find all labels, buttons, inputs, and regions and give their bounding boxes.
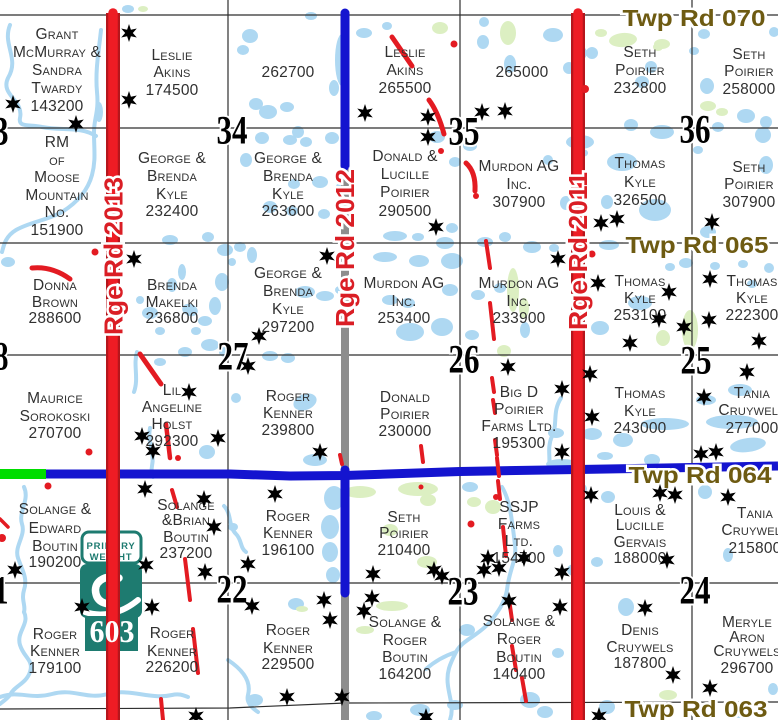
svg-text:Kenner: Kenner: [147, 643, 197, 660]
svg-text:of: of: [49, 152, 65, 169]
svg-text:35: 35: [449, 109, 480, 154]
svg-text:Big D: Big D: [500, 384, 538, 401]
svg-text:Seth: Seth: [387, 509, 420, 526]
svg-text:Thomas: Thomas: [614, 273, 665, 290]
svg-text:Donald &: Donald &: [372, 148, 438, 165]
svg-text:215800: 215800: [729, 540, 778, 557]
svg-text:Seth: Seth: [732, 46, 765, 63]
svg-text:Grant: Grant: [35, 26, 78, 43]
svg-text:McMurray &: McMurray &: [13, 44, 102, 61]
svg-text:190200: 190200: [29, 554, 82, 571]
svg-text:Twp Rd 070: Twp Rd 070: [623, 5, 766, 31]
svg-text:236800: 236800: [146, 310, 199, 327]
svg-text:Kenner: Kenner: [263, 640, 313, 657]
svg-text:Solange &: Solange &: [19, 501, 92, 518]
svg-text:Roger: Roger: [266, 622, 311, 639]
svg-text:Akins: Akins: [153, 64, 190, 81]
svg-text:Moose: Moose: [34, 169, 80, 186]
svg-text:Twp Rd 063: Twp Rd 063: [625, 696, 768, 720]
svg-text:164200: 164200: [379, 666, 432, 683]
svg-text:270700: 270700: [29, 425, 82, 442]
svg-text:25: 25: [681, 338, 712, 383]
svg-text:Maurice: Maurice: [27, 390, 83, 407]
svg-text:Brenda: Brenda: [147, 168, 198, 185]
svg-text:SSJP: SSJP: [499, 499, 539, 516]
svg-text:Rge Rd 2011: Rge Rd 2011: [563, 172, 593, 330]
svg-text:Mountain: Mountain: [25, 187, 88, 204]
svg-text:143200: 143200: [31, 98, 84, 115]
svg-text:Angeline: Angeline: [142, 399, 202, 416]
svg-text:Kyle: Kyle: [272, 186, 304, 203]
svg-text:Leslie: Leslie: [384, 44, 425, 61]
svg-text:263600: 263600: [262, 203, 315, 220]
svg-text:Boutin: Boutin: [382, 649, 428, 666]
svg-text:Kyle: Kyle: [624, 290, 656, 307]
svg-text:Kenner: Kenner: [263, 405, 313, 422]
svg-text:140400: 140400: [493, 666, 546, 683]
svg-text:George &: George &: [254, 265, 322, 282]
svg-text:26: 26: [449, 337, 480, 382]
svg-text:253400: 253400: [378, 310, 431, 327]
svg-text:24: 24: [680, 568, 711, 613]
svg-text:Roger: Roger: [33, 626, 78, 643]
svg-text:Holst: Holst: [152, 416, 193, 433]
svg-text:222300: 222300: [726, 307, 778, 324]
svg-text:Kenner: Kenner: [263, 525, 313, 542]
svg-text:Boutin: Boutin: [32, 538, 78, 555]
svg-text:Poirier: Poirier: [615, 62, 665, 79]
svg-text:Brenda: Brenda: [263, 283, 314, 300]
svg-text:297200: 297200: [262, 319, 315, 336]
svg-text:195300: 195300: [493, 435, 546, 452]
svg-text:Thomas: Thomas: [614, 385, 665, 402]
svg-text:Farms: Farms: [498, 516, 540, 533]
svg-text:179100: 179100: [29, 660, 82, 677]
svg-text:Roger: Roger: [383, 632, 428, 649]
svg-text:326500: 326500: [614, 192, 667, 209]
svg-text:22: 22: [217, 567, 248, 612]
svg-text:Boutin: Boutin: [163, 529, 209, 546]
svg-text:Cruywels: Cruywels: [713, 643, 778, 660]
svg-text:Rge Rd 2013: Rge Rd 2013: [99, 177, 129, 335]
svg-text:Kyle: Kyle: [156, 186, 188, 203]
svg-text:237200: 237200: [160, 545, 213, 562]
svg-text:Poirier: Poirier: [379, 525, 429, 542]
svg-text:Inc.: Inc.: [506, 293, 531, 310]
svg-text:George &: George &: [254, 150, 322, 167]
svg-text:Gervais: Gervais: [614, 534, 667, 551]
svg-text:Poirier: Poirier: [380, 184, 430, 201]
svg-text:Murdon AG: Murdon AG: [479, 158, 560, 175]
svg-text:Cruywels: Cruywels: [606, 639, 673, 656]
svg-text:Lil: Lil: [163, 382, 181, 399]
svg-text:Roger: Roger: [150, 625, 195, 642]
svg-text:George &: George &: [138, 150, 206, 167]
svg-text:Thomas: Thomas: [726, 273, 777, 290]
svg-text:Kyle: Kyle: [624, 174, 656, 191]
svg-text:Lucille: Lucille: [381, 166, 430, 183]
svg-text:Roger: Roger: [266, 388, 311, 405]
svg-text:174500: 174500: [146, 82, 199, 99]
svg-text:Cruywels: Cruywels: [718, 402, 778, 419]
svg-text:243000: 243000: [614, 420, 667, 437]
svg-text:Tania: Tania: [734, 385, 771, 402]
svg-text:Twardy: Twardy: [31, 80, 83, 97]
svg-text:210400: 210400: [378, 542, 431, 559]
svg-text:36: 36: [680, 107, 711, 152]
svg-text:188000: 188000: [614, 550, 667, 567]
svg-text:277000: 277000: [726, 420, 778, 437]
svg-text:232800: 232800: [614, 80, 667, 97]
svg-text:Murdon AG: Murdon AG: [364, 275, 445, 292]
svg-text:Poirier: Poirier: [380, 406, 430, 423]
svg-text:Poirier: Poirier: [494, 401, 544, 418]
svg-text:Twp Rd 065: Twp Rd 065: [626, 232, 769, 258]
svg-text:23: 23: [448, 569, 479, 614]
svg-text:Brenda: Brenda: [263, 168, 314, 185]
svg-text:307900: 307900: [723, 194, 776, 211]
svg-text:Murdon AG: Murdon AG: [479, 275, 560, 292]
svg-text:Sorokoski: Sorokoski: [20, 408, 91, 425]
svg-text:Rge Rd 2012: Rge Rd 2012: [330, 169, 360, 327]
svg-text:Seth: Seth: [623, 44, 656, 61]
svg-text:Kenner: Kenner: [30, 643, 80, 660]
svg-text:Solange &: Solange &: [369, 614, 442, 631]
svg-text:230000: 230000: [379, 423, 432, 440]
svg-text:262700: 262700: [262, 64, 315, 81]
svg-text:603: 603: [90, 613, 135, 649]
svg-text:151900: 151900: [31, 222, 84, 239]
svg-text:Kyle: Kyle: [624, 403, 656, 420]
svg-text:Lucille: Lucille: [616, 517, 665, 534]
svg-text:Boutin: Boutin: [496, 649, 542, 666]
svg-text:Donna: Donna: [33, 277, 77, 294]
svg-text:196100: 196100: [262, 542, 315, 559]
svg-text:Inc.: Inc.: [391, 293, 416, 310]
svg-text:Brenda: Brenda: [147, 277, 198, 294]
svg-text:Edward: Edward: [29, 520, 82, 537]
svg-text:Seth: Seth: [732, 159, 765, 176]
svg-text:Akins: Akins: [386, 62, 423, 79]
svg-text:Farms Ltd.: Farms Ltd.: [481, 418, 556, 435]
svg-text:Kyle: Kyle: [736, 290, 768, 307]
svg-text:Makelki: Makelki: [146, 294, 199, 311]
svg-text:Brown: Brown: [32, 294, 78, 311]
svg-text:229500: 229500: [262, 656, 315, 673]
svg-text:226200: 226200: [146, 659, 199, 676]
svg-text:No.: No.: [45, 204, 70, 221]
svg-text:Twp Rd 064: Twp Rd 064: [629, 462, 772, 488]
svg-text:Solange &: Solange &: [483, 613, 556, 630]
svg-text:Kyle: Kyle: [272, 301, 304, 318]
svg-text:Leslie: Leslie: [151, 47, 192, 64]
svg-text:8: 8: [0, 334, 9, 379]
svg-text:Ltd.: Ltd.: [505, 533, 533, 550]
svg-text:Cruywels: Cruywels: [721, 522, 778, 539]
svg-text:Poirier: Poirier: [724, 176, 774, 193]
svg-text:187800: 187800: [614, 655, 667, 672]
svg-text:Tania: Tania: [737, 505, 774, 522]
svg-text:3: 3: [0, 109, 9, 154]
svg-text:233900: 233900: [493, 310, 546, 327]
svg-text:239800: 239800: [262, 422, 315, 439]
svg-text:&Brian: &Brian: [162, 512, 210, 529]
svg-text:Sandra: Sandra: [32, 62, 83, 79]
svg-text:290500: 290500: [379, 203, 432, 220]
svg-text:Denis: Denis: [621, 622, 659, 639]
svg-text:296700: 296700: [721, 660, 774, 677]
svg-text:RM: RM: [45, 134, 70, 151]
svg-text:307900: 307900: [493, 194, 546, 211]
svg-text:265000: 265000: [496, 64, 549, 81]
svg-text:Poirier: Poirier: [724, 63, 774, 80]
svg-text:Inc.: Inc.: [506, 176, 531, 193]
svg-text:232400: 232400: [146, 203, 199, 220]
svg-text:1: 1: [0, 568, 9, 613]
svg-text:Thomas: Thomas: [614, 155, 665, 172]
svg-text:27: 27: [218, 334, 249, 379]
svg-text:Roger: Roger: [497, 631, 542, 648]
svg-text:Donald: Donald: [380, 389, 430, 406]
svg-text:288600: 288600: [29, 310, 82, 327]
svg-text:258000: 258000: [723, 81, 776, 98]
svg-text:34: 34: [217, 108, 248, 153]
svg-text:265500: 265500: [379, 80, 432, 97]
svg-text:Roger: Roger: [266, 508, 311, 525]
